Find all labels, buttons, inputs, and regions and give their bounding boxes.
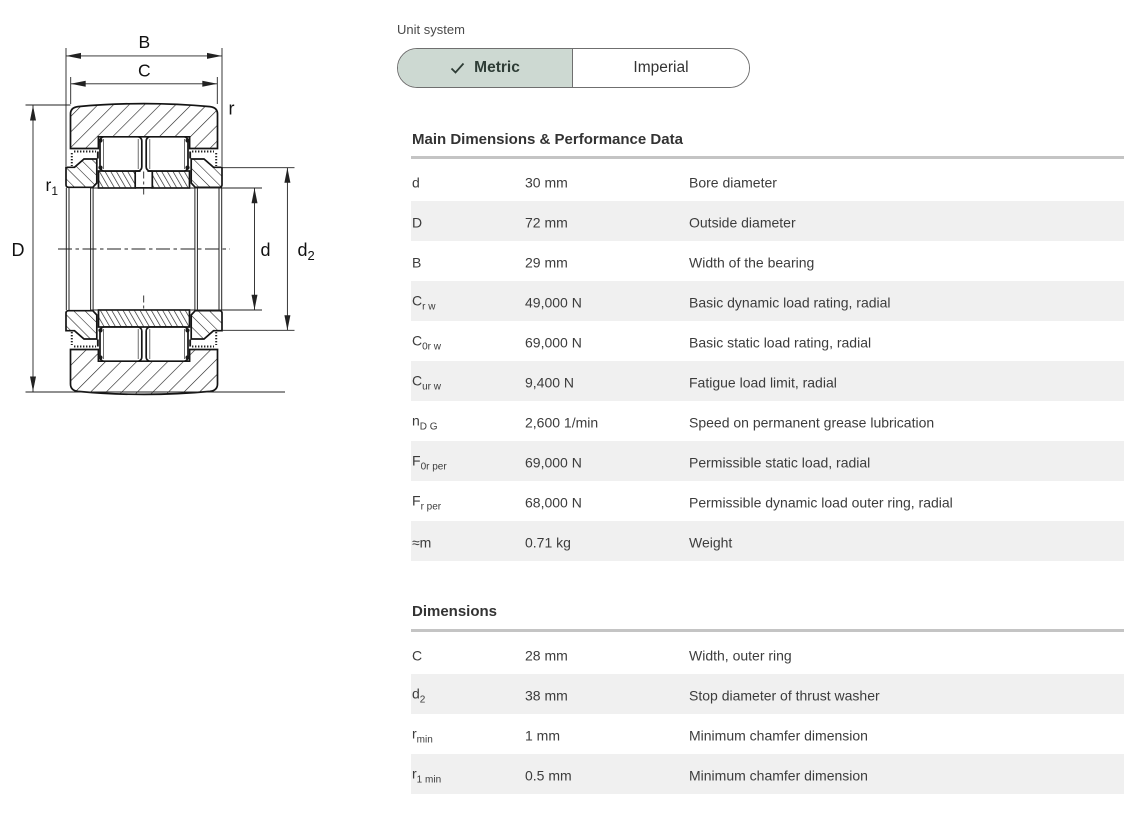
svg-text:D: D xyxy=(12,240,25,260)
svg-text:B: B xyxy=(139,32,151,52)
svg-text:d2: d2 xyxy=(298,240,315,263)
svg-text:C: C xyxy=(138,61,151,81)
svg-text:r: r xyxy=(229,99,235,119)
svg-text:r1: r1 xyxy=(46,175,59,198)
svg-text:d: d xyxy=(261,240,271,260)
